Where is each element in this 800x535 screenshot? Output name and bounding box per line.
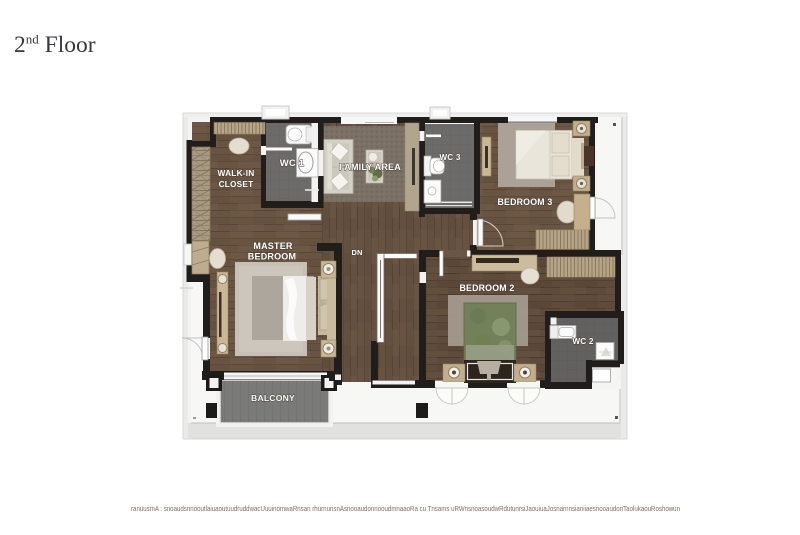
- svg-text:ranuusmA : snoaudsnnooutlaiuao: ranuusmA : snoaudsnnooutlaiuaoutuudruddw…: [131, 504, 680, 513]
- svg-text:MASTER: MASTER: [253, 241, 293, 251]
- svg-text:CLOSET: CLOSET: [219, 179, 254, 189]
- svg-text:BEDROOM 3: BEDROOM 3: [497, 197, 552, 207]
- svg-text:DN: DN: [351, 248, 362, 257]
- svg-text:BEDROOM: BEDROOM: [248, 252, 296, 262]
- svg-text:WC 2: WC 2: [572, 337, 594, 346]
- svg-text:WC 3: WC 3: [439, 153, 461, 162]
- svg-text:WC 1: WC 1: [280, 158, 305, 169]
- svg-text:FAMILY AREA: FAMILY AREA: [339, 162, 401, 172]
- svg-text:BALCONY: BALCONY: [251, 393, 295, 403]
- svg-text:WALK-IN: WALK-IN: [218, 168, 255, 178]
- svg-text:BEDROOM 2: BEDROOM 2: [459, 283, 514, 293]
